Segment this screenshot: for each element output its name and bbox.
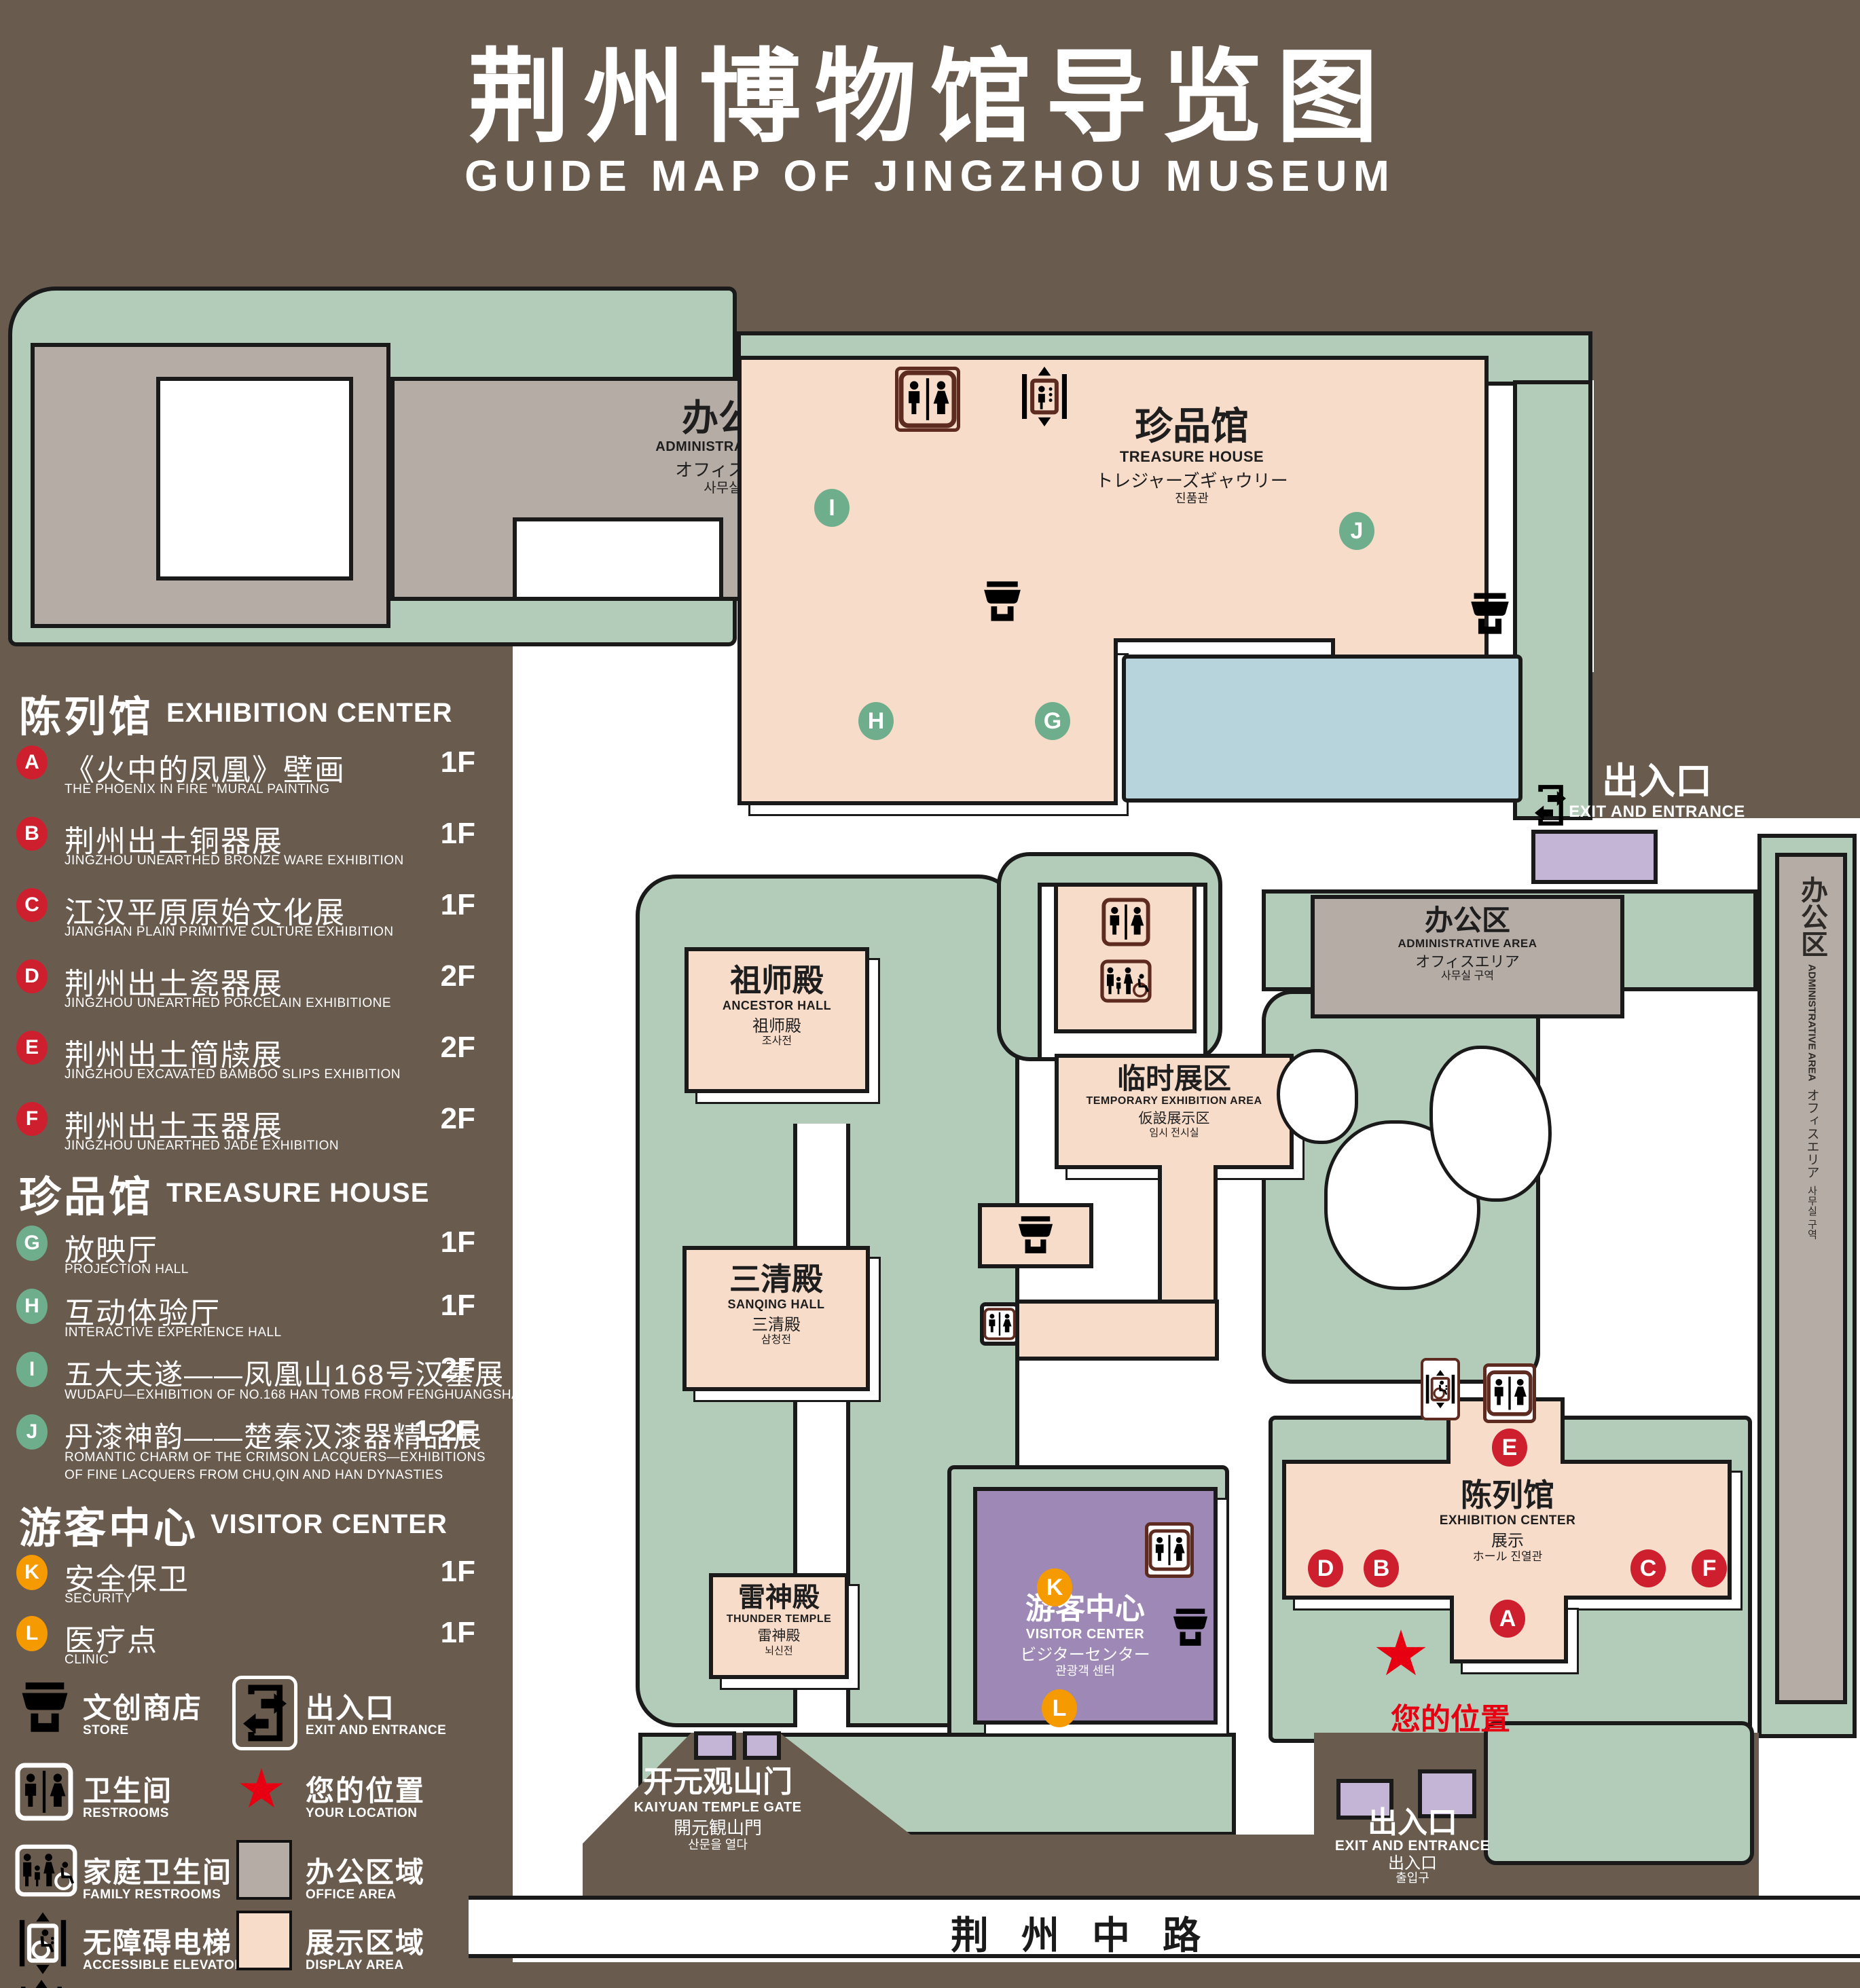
item-floor: 2F [373,1352,475,1386]
item-floor: 1F [373,888,475,922]
legend-badge-i: I [16,1352,48,1387]
section-title: 珍品馆 [19,1162,153,1223]
legend-label-en: DISPLAY AREA [306,1958,404,1973]
legend-label-en: YOUR LOCATION [306,1806,417,1821]
temporary-exhibition-label: 临时展区 TEMPORARY EXHIBITION AREA 仮設展示区 임시 … [1055,1063,1294,1139]
lake [1122,655,1522,803]
restroom-icon [895,367,953,425]
item-floor: 1F [373,817,475,851]
marker-c: C [1630,1549,1666,1587]
guide-map-poster: 荆州博物馆导览图 GUIDE MAP OF JINGZHOU MUSEUM 荆州… [0,0,1860,1988]
legend-label-en: STORE [83,1723,129,1738]
marker-h: H [858,702,894,740]
restroom-icon [15,1759,73,1825]
item-floor: 2F [373,1102,475,1136]
item-en: JINGZHOU UNEARTHED BRONZE WARE EXHIBITIO… [65,853,404,868]
marker-d: D [1308,1549,1343,1587]
store-icon [1016,1215,1055,1255]
pond [1277,1049,1358,1144]
item-floor: 2F [373,959,475,993]
legend-label: 展示区域 [306,1920,425,1962]
legend-badge-g: G [16,1226,48,1261]
item-en2: OF FINE LACQUERS FROM CHU,QIN AND HAN DY… [65,1468,443,1483]
item-floor: 1F [373,1289,475,1323]
accessible-elevator-icon [1425,1362,1456,1416]
legend-label: 文创商店 [83,1685,202,1727]
poster-subtitle: GUIDE MAP OF JINGZHOU MUSEUM [0,151,1860,201]
section-title-en: VISITOR CENTER [211,1509,448,1540]
admin-rightbar-label: 办公区 ADMINISTRATIVE AREA オフィスエリア 사무실 구역 [1781,876,1843,1684]
sanqing-hall-label: 三清殿 SANQING HALL 三清殿 삼청전 [682,1262,870,1347]
legend-badge-e: E [16,1031,48,1065]
road-label: 荆州中路 [951,1905,1233,1960]
marker-j: J [1339,512,1374,550]
legend-badge-h: H [16,1289,48,1324]
building-joint [742,625,1114,661]
family-restroom-icon [15,1841,77,1900]
legend-label: 无障碍电梯 [83,1920,232,1962]
gate-label: 开元观山门 KAIYUAN TEMPLE GATE 開元観山門 산문을 열다 [582,1765,854,1852]
item-en: JINGZHOU UNEARTHED PORCELAIN EXHIBITIONE [65,996,391,1011]
item-en: PROJECTION HALL [65,1262,189,1277]
section-title-en: EXHIBITION CENTER [166,698,452,729]
exit-bottom-label: 出入口 EXIT AND ENTRANCE 出入口 출입구 [1290,1807,1535,1885]
item-en: INTERACTIVE EXPERIENCE HALL [65,1325,282,1340]
section-title: 陈列馆 [19,682,153,743]
marker-a: A [1490,1600,1525,1638]
store-icon [17,1682,73,1733]
legend-label: 电梯 [83,1981,137,1988]
legend-badge-d: D [16,959,48,993]
section-title: 游客中心 [19,1494,198,1555]
admin-right-label: 办公区 ADMINISTRATIVE AREA オフィスエリア 사무실 구역 [1311,904,1624,983]
marker-e: E [1492,1429,1527,1467]
treasure-house-label: 珍品馆 TREASURE HOUSE トレジャーズギャウリー 진품관 [1056,405,1328,505]
item-en: THE PHOENIX IN FIRE "MURAL PAINTING [65,782,330,797]
family-restroom-icon [1100,959,1152,1004]
item-en: SECURITY [65,1591,132,1606]
ancestor-hall-label: 祖师殿 ANCESTOR HALL 祖师殿 조사전 [685,963,869,1048]
legend-label-en: FAMILY RESTROOMS [83,1888,221,1902]
green-area [1513,380,1592,820]
elevator-icon [1017,367,1072,426]
thunder-temple-label: 雷神殿 THUNDER TEMPLE 雷神殿 뇌신전 [709,1582,849,1657]
display-area-swatch [236,1911,292,1970]
item-floor: 1F [373,1555,475,1589]
restroom-icon [1483,1363,1529,1416]
legend-label: 出入口 [306,1685,395,1727]
marker-g: G [1035,702,1070,740]
item-en: JINGZHOU EXCAVATED BAMBOO SLIPS EXHIBITI… [65,1067,401,1082]
legend-badge-f: F [16,1102,48,1136]
item-en: ROMANTIC CHARM OF THE CRIMSON LACQUERS—E… [65,1450,486,1465]
item-floor: 1-2F [373,1414,475,1448]
office-area-swatch [236,1840,292,1900]
item-floor: 2F [373,1031,475,1065]
legend-badge-a: A [16,745,48,779]
item-floor: 1F [373,745,475,779]
legend-badge-b: B [16,817,48,851]
visitor-center-label: 游客中心 VISITOR CENTER ビジターセンター 관광객 센터 [973,1592,1197,1678]
location-star-icon [239,1768,284,1811]
store-icon [1468,592,1512,636]
legend-badge-j: J [16,1414,48,1450]
exhibition-center-label: 陈列馆 EXHIBITION CENTER 展示 ホール 진열관 [1372,1477,1643,1564]
legend-label-en: OFFICE AREA [306,1888,397,1902]
legend-badge-k: K [16,1555,48,1590]
restroom-icon [983,1308,1016,1340]
item-en: JIANGHAN PLAIN PRIMITIVE CULTURE EXHIBIT… [65,925,394,940]
item-en: JINGZHOU UNEARTHED JADE EXHIBITION [65,1139,339,1154]
store-icon [981,581,1023,623]
your-location-label: 您的位置 [1355,1695,1546,1738]
item-en: CLINIC [65,1653,109,1668]
gate-booth [743,1731,781,1760]
courtyard [156,377,353,581]
legend-label-en: ACCESSIBLE ELEVATOR [83,1958,244,1973]
gate-booth [694,1731,736,1760]
marker-i: I [814,489,850,527]
legend-badge-c: C [16,888,48,922]
accessible-elevator-icon [18,1912,68,1974]
exit-entrance-icon [232,1676,291,1744]
legend-label: 卫生间 [83,1768,172,1809]
item-floor: 1F [373,1226,475,1259]
entrance-building [1531,830,1658,884]
legend-label: 家庭卫生间 [83,1849,232,1891]
marker-f: F [1692,1549,1727,1587]
marker-b: B [1364,1549,1399,1587]
section-title-en: TREASURE HOUSE [166,1178,429,1209]
legend-label-en: RESTROOMS [83,1806,169,1821]
building-joint [1162,1304,1214,1357]
legend-label-en: EXIT AND ENTRANCE [306,1723,446,1738]
item-floor: 1F [373,1616,475,1650]
store-icon [1171,1606,1210,1649]
item-en: WUDAFU—EXHIBITION OF NO.168 HAN TOMB FRO… [65,1388,530,1403]
courtyard [513,517,723,601]
marker-l: L [1042,1689,1077,1727]
legend-label: 您的位置 [306,1768,425,1809]
marker-k: K [1037,1568,1072,1606]
restroom-icon [1145,1522,1187,1571]
elevator-icon [19,1980,64,1988]
legend-label: 办公区域 [306,1849,425,1891]
restroom-icon [1101,895,1150,949]
building-joint [1162,1154,1214,1173]
legend-badge-l: L [16,1616,48,1651]
poster-title: 荆州博物馆导览图 [0,15,1860,162]
